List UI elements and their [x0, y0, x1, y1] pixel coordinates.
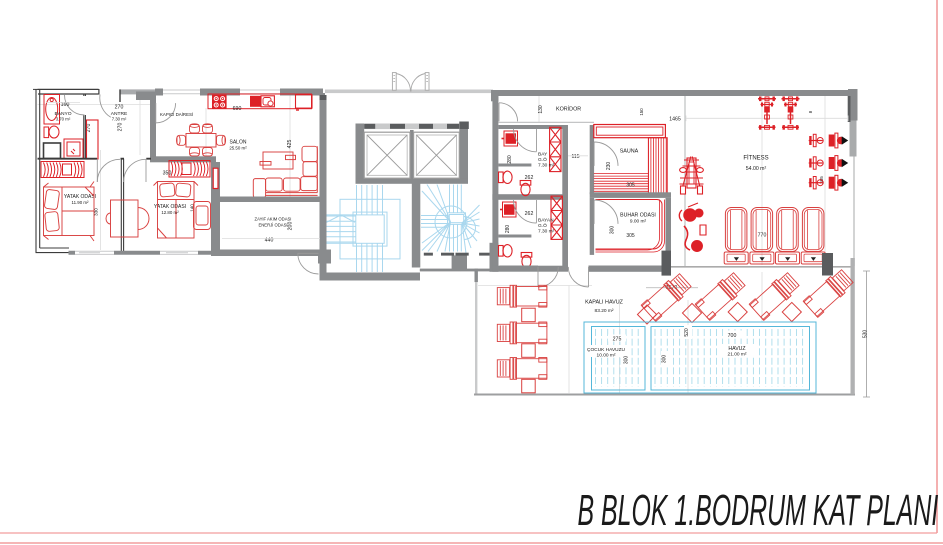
svg-text:230: 230	[606, 162, 612, 171]
svg-text:520: 520	[684, 328, 690, 337]
svg-text:270: 270	[115, 105, 124, 111]
svg-text:FİTNESS: FİTNESS	[743, 155, 768, 162]
svg-text:BUHAR ODASI: BUHAR ODASI	[620, 213, 656, 219]
svg-text:300: 300	[624, 356, 630, 365]
svg-text:B BLOK 1.BODRUM KAT PLANI: B BLOK 1.BODRUM KAT PLANI	[578, 486, 939, 535]
svg-text:160: 160	[61, 102, 70, 108]
svg-text:262: 262	[525, 211, 534, 217]
svg-text:530: 530	[863, 330, 869, 339]
svg-text:G.Ö: G.Ö	[538, 222, 547, 229]
svg-text:690: 690	[233, 106, 242, 112]
svg-text:83.20 m²: 83.20 m²	[595, 308, 614, 314]
svg-text:ÇOCUK HAVUZU: ÇOCUK HAVUZU	[587, 347, 626, 353]
svg-text:ZAYIF AKIM ODASI: ZAYIF AKIM ODASI	[255, 217, 292, 222]
svg-text:10.00 m²: 10.00 m²	[597, 353, 616, 359]
svg-text:150: 150	[639, 108, 644, 116]
svg-text:3.70 m²: 3.70 m²	[56, 117, 71, 122]
svg-text:305: 305	[626, 233, 635, 239]
svg-text:BAYAN: BAYAN	[538, 218, 554, 224]
svg-text:KAPALI HAVUZ: KAPALI HAVUZ	[585, 300, 624, 306]
svg-text:54.00 m²: 54.00 m²	[746, 166, 767, 172]
svg-text:300: 300	[662, 355, 668, 364]
svg-text:7.30 m²: 7.30 m²	[538, 163, 555, 169]
svg-text:25.50 m²: 25.50 m²	[229, 146, 247, 151]
svg-text:305: 305	[626, 183, 635, 189]
svg-text:130: 130	[538, 105, 544, 114]
svg-text:280: 280	[507, 155, 513, 164]
svg-text:G.Ö: G.Ö	[538, 156, 547, 163]
svg-text:HAVUZ: HAVUZ	[728, 346, 745, 352]
svg-text:115: 115	[572, 154, 580, 160]
svg-text:275: 275	[613, 337, 622, 343]
svg-text:350: 350	[163, 171, 172, 177]
svg-text:9.00 m²: 9.00 m²	[630, 219, 647, 225]
svg-text:770: 770	[758, 233, 767, 239]
svg-text:KORİDOR: KORİDOR	[556, 106, 581, 113]
svg-text:200: 200	[288, 222, 294, 231]
svg-text:21.00 m²: 21.00 m²	[728, 352, 747, 358]
svg-text:7.30 m²: 7.30 m²	[112, 117, 127, 122]
svg-text:700: 700	[728, 333, 737, 339]
svg-text:425: 425	[287, 140, 293, 149]
svg-text:12.80 m²: 12.80 m²	[161, 210, 179, 215]
svg-text:300: 300	[610, 226, 616, 235]
svg-text:270: 270	[118, 123, 124, 132]
svg-text:BAY: BAY	[538, 152, 548, 158]
svg-text:SAUNA: SAUNA	[620, 149, 639, 155]
svg-text:7.30 m²: 7.30 m²	[538, 229, 555, 235]
svg-text:ENERJİ ODASI: ENERJİ ODASI	[258, 223, 287, 228]
svg-text:KAPICI DAİRESİ: KAPICI DAİRESİ	[160, 112, 193, 117]
svg-text:280: 280	[505, 225, 511, 234]
svg-text:1465: 1465	[669, 117, 681, 123]
svg-text:11.90 m²: 11.90 m²	[71, 200, 89, 205]
